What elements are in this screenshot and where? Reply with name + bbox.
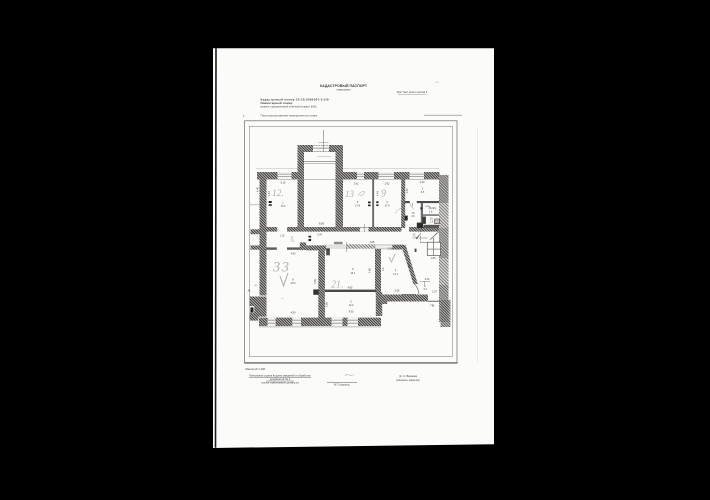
svg-text:(полное наименование должности: (полное наименование должности) [261, 382, 299, 384]
svg-text:4.40: 4.40 [257, 187, 260, 192]
svg-text:документов № 4: документов № 4 [270, 377, 291, 381]
svg-text:6.5: 6.5 [421, 191, 425, 194]
svg-text:9: 9 [381, 189, 386, 200]
svg-text:17.8: 17.8 [355, 205, 360, 208]
svg-text:4.90: 4.90 [291, 252, 296, 255]
svg-text:(инициалы, фамилия): (инициалы, фамилия) [396, 379, 420, 382]
svg-text:17.9: 17.9 [385, 205, 390, 208]
svg-text:2.97: 2.97 [406, 188, 409, 193]
svg-text:4.85: 4.85 [348, 286, 353, 289]
svg-text:помещения: помещения [337, 89, 352, 92]
svg-text:4.88: 4.88 [370, 241, 375, 244]
svg-text:2.92: 2.92 [385, 183, 390, 186]
svg-text:(ранее присвоенный учетный ном: (ранее присвоенный учетный номер) БНС [261, 105, 317, 109]
svg-text:Начальник отдела выдачи сведен: Начальник отдела выдачи сведений и обраб… [249, 374, 311, 378]
svg-text:2.68: 2.68 [369, 268, 372, 273]
svg-text:4.10: 4.10 [425, 278, 430, 281]
svg-text:2.92: 2.92 [354, 183, 359, 186]
svg-text:Ж. С. Вацаева: Ж. С. Вацаева [399, 374, 418, 378]
svg-text:13.1: 13.1 [350, 272, 355, 275]
svg-text:8.06: 8.06 [319, 222, 325, 226]
svg-text:2.68: 2.68 [378, 302, 381, 307]
svg-text:4.40: 4.40 [268, 191, 271, 196]
svg-text:4.50: 4.50 [349, 310, 354, 313]
svg-text:13.1: 13.1 [393, 273, 398, 276]
svg-text:М.П. (подпись): М.П. (подпись) [334, 384, 350, 386]
svg-text:12.2: 12.2 [349, 304, 354, 307]
svg-text:5.96: 5.96 [395, 290, 400, 293]
svg-text:4.59: 4.59 [291, 311, 296, 314]
svg-text:План расположения помещения на: План расположения помещения на этаже [261, 113, 318, 117]
svg-text:Инвентарный номер: Инвентарный номер [261, 101, 293, 105]
svg-text:2.07: 2.07 [432, 290, 437, 293]
svg-text:2.20: 2.20 [420, 181, 425, 184]
svg-text:5.19: 5.19 [281, 181, 286, 184]
svg-text:1.80: 1.80 [431, 257, 436, 260]
svg-text:21.: 21. [331, 280, 344, 291]
svg-text:Лист №2, всего листов 2: Лист №2, всего листов 2 [397, 90, 428, 94]
svg-text:3.05: 3.05 [314, 279, 317, 284]
svg-text:Масштаб 1:100: Масштаб 1:100 [246, 367, 266, 371]
svg-text:3Б,4(1): 3Б,4(1) [429, 207, 437, 210]
svg-text:2.68: 2.68 [326, 302, 329, 307]
svg-text:13.4: 13.4 [281, 205, 286, 208]
svg-text:1.10: 1.10 [280, 234, 285, 237]
svg-text:1А: 1А [430, 218, 433, 221]
svg-text:2.56: 2.56 [388, 247, 393, 250]
svg-text:ПБ: ПБ [431, 304, 435, 308]
svg-text:20.3: 20.3 [291, 282, 296, 285]
svg-text:13: 13 [345, 189, 355, 199]
svg-text:1.: 1. [243, 113, 246, 117]
svg-text:3.34: 3.34 [317, 233, 322, 236]
svg-text:КАДАСТРОВЫЙ ПАСПОРТ: КАДАСТРОВЫЙ ПАСПОРТ [320, 84, 368, 88]
svg-text:4.40: 4.40 [377, 191, 380, 196]
svg-text:12.: 12. [272, 189, 284, 199]
svg-text:5.: 5. [255, 284, 258, 286]
